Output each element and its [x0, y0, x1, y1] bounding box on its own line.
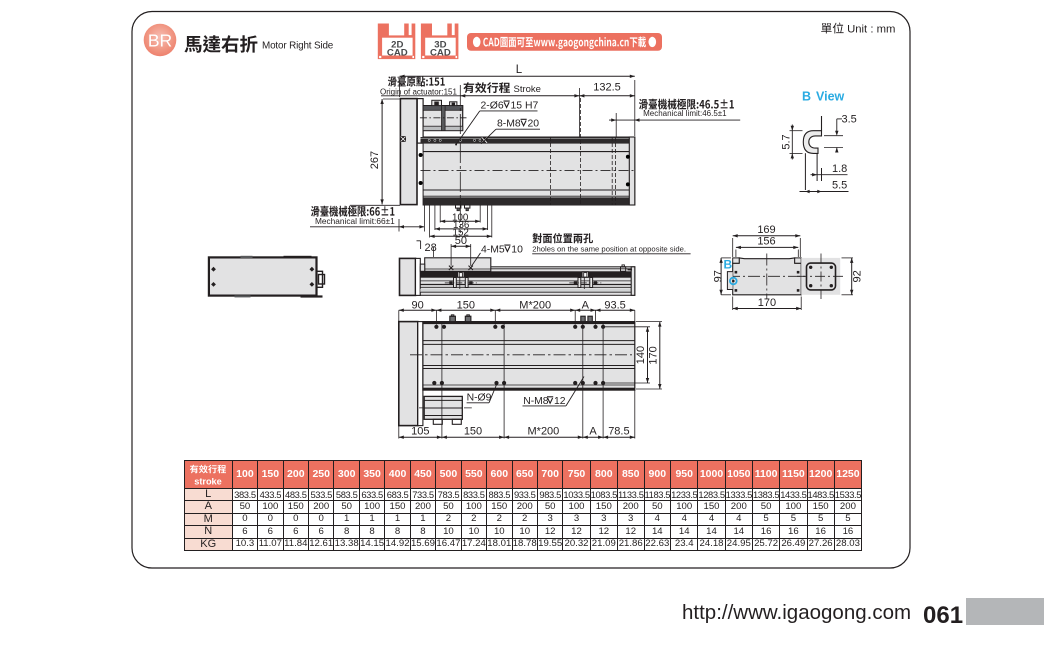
svg-text:97: 97	[712, 270, 724, 282]
svg-text:150: 150	[457, 299, 475, 311]
svg-text:105: 105	[411, 426, 429, 438]
svg-text:10: 10	[511, 244, 523, 255]
svg-text:Mechanical limit:66±1: Mechanical limit:66±1	[315, 216, 395, 226]
svg-text:267: 267	[369, 151, 381, 169]
svg-text:170: 170	[647, 346, 659, 364]
svg-text:B: B	[802, 89, 811, 103]
svg-text:CAD: CAD	[387, 47, 408, 58]
svg-text:Stroke: Stroke	[514, 84, 541, 95]
svg-text:A: A	[589, 426, 597, 438]
svg-text:Motor Right Side: Motor Right Side	[262, 41, 334, 52]
svg-text:28: 28	[425, 242, 437, 254]
svg-text:92: 92	[852, 270, 864, 282]
svg-text:5.7: 5.7	[781, 134, 793, 149]
svg-text:L: L	[516, 64, 523, 76]
svg-text:N-M8: N-M8	[523, 396, 549, 407]
svg-text:169: 169	[757, 224, 775, 236]
svg-text:N-Ø9: N-Ø9	[467, 393, 492, 404]
svg-text:93.5: 93.5	[604, 299, 625, 311]
svg-text:M*200: M*200	[528, 426, 560, 438]
svg-text:4-M5: 4-M5	[481, 244, 505, 255]
svg-text:stroke: stroke	[194, 476, 222, 486]
svg-text:170: 170	[758, 297, 776, 309]
svg-text:150: 150	[464, 426, 482, 438]
svg-text:Unit : mm: Unit : mm	[847, 24, 895, 36]
svg-text:2-Ø6: 2-Ø6	[481, 100, 504, 111]
svg-text:B: B	[724, 257, 733, 271]
svg-text:View: View	[816, 89, 845, 103]
svg-text:8-M8: 8-M8	[497, 119, 521, 130]
svg-text:90: 90	[411, 299, 423, 311]
svg-text:78.5: 78.5	[608, 426, 629, 438]
svg-text:5.5: 5.5	[832, 180, 847, 192]
svg-text:A: A	[582, 299, 590, 311]
svg-text:140: 140	[635, 346, 647, 364]
svg-text:12: 12	[554, 396, 566, 407]
svg-text:50: 50	[455, 235, 467, 247]
svg-text:1.8: 1.8	[832, 163, 847, 175]
svg-text:2holes on the same position at: 2holes on the same position at opposite …	[532, 245, 686, 254]
svg-text:132.5: 132.5	[593, 82, 621, 94]
svg-text:3.5: 3.5	[842, 114, 857, 126]
svg-text:15 H7: 15 H7	[511, 100, 539, 111]
svg-text:M*200: M*200	[519, 299, 551, 311]
svg-text:20: 20	[528, 119, 540, 130]
svg-text:BR: BR	[148, 31, 172, 51]
svg-text:Mechanical limit:46.5±1: Mechanical limit:46.5±1	[643, 109, 727, 118]
svg-text:156: 156	[757, 236, 775, 248]
svg-text:CAD: CAD	[430, 47, 451, 58]
svg-text:Origin of actuator:151: Origin of actuator:151	[380, 87, 457, 96]
